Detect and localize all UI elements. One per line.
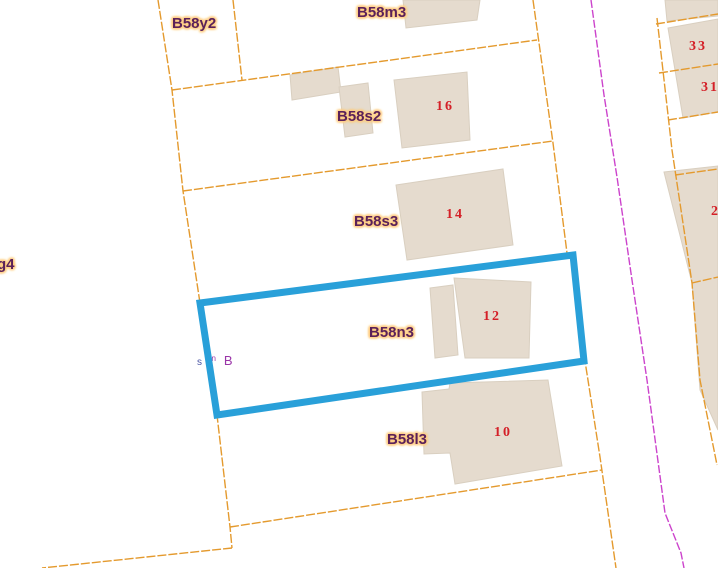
annotation-b: B [224,353,233,368]
parcel-label-b58m3: B58m3 [357,4,406,21]
parcel-label-b58n3: B58n3 [369,324,414,341]
parcel-label-b58s2: B58s2 [337,108,381,125]
house-number-14: 14 [446,207,464,223]
map-canvas[interactable]: g4 B58y2 B58m3 B58s2 B58s3 B58n3 B58l3 1… [0,0,718,568]
map-labels-layer: g4 B58y2 B58m3 B58s2 B58s3 B58n3 B58l3 1… [0,0,718,568]
parcel-label-g4: g4 [0,256,15,273]
house-number-16: 16 [436,99,454,115]
house-number-31: 31 [701,80,718,96]
parcel-label-b58y2: B58y2 [172,15,216,32]
house-number-12: 12 [483,309,501,325]
parcel-label-b58s3: B58s3 [354,213,398,230]
map-annotation-spn-b: spnB [197,352,233,370]
annotation-sup: pn [207,354,216,363]
house-number-10: 10 [494,425,512,441]
house-number-2: 2 [711,204,718,220]
annotation-s: s [197,357,202,368]
parcel-label-b58l3: B58l3 [387,431,427,448]
house-number-33: 33 [689,39,707,55]
